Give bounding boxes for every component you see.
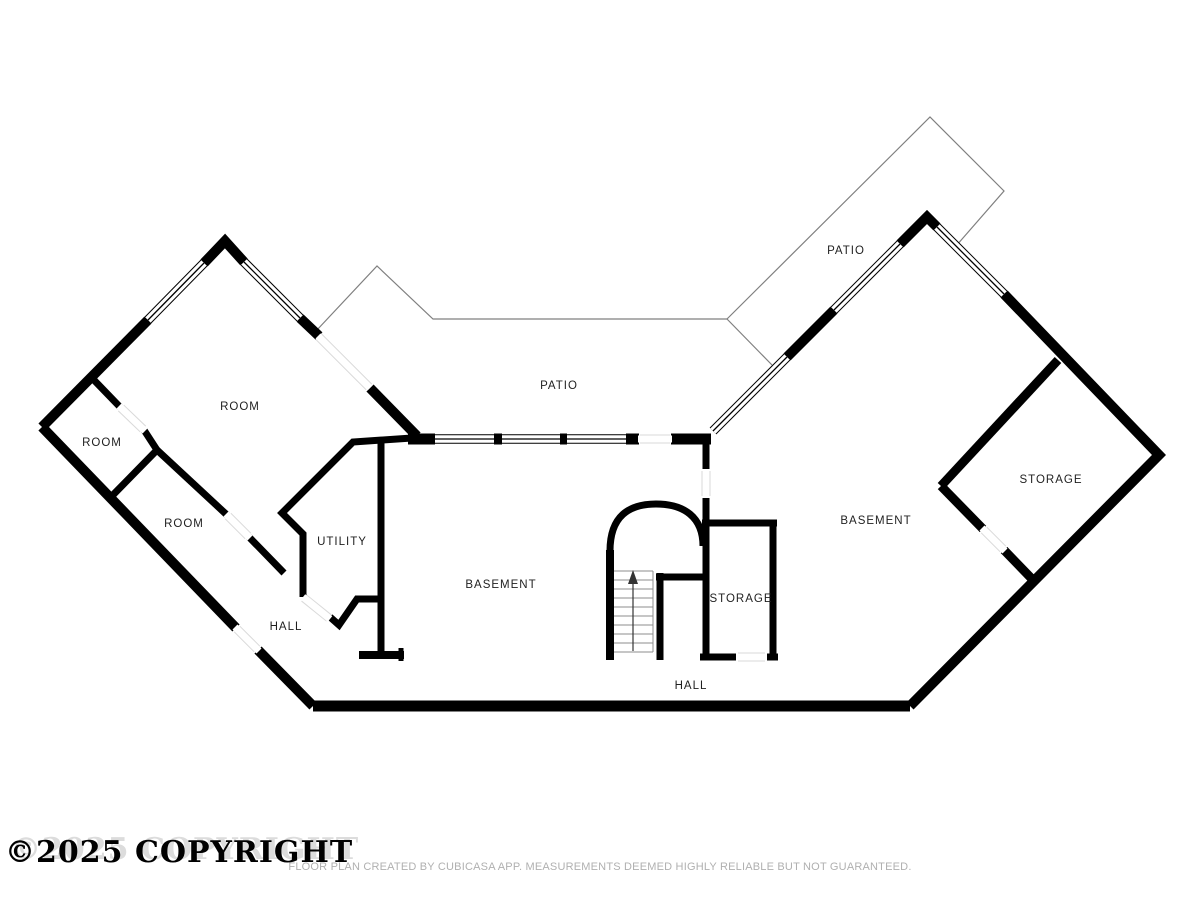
room-label-south: ROOM — [164, 518, 204, 530]
storage-east-sw-wall — [1004, 550, 1033, 580]
patio-outline-center-corner — [727, 319, 772, 365]
patio-label-northeast: PATIO — [827, 245, 865, 257]
wall-segment — [910, 294, 1159, 706]
wall-segment — [204, 241, 244, 263]
room-label-west: ROOM — [82, 437, 122, 449]
window — [148, 263, 204, 320]
stair-curved-wall — [610, 504, 703, 551]
wall-segment — [42, 320, 148, 427]
wall-segment — [370, 388, 417, 436]
storage-east-sw-wall — [941, 486, 983, 529]
window — [937, 227, 1004, 294]
utility-label: UTILITY — [317, 536, 367, 548]
wall-segment — [258, 650, 313, 706]
door-opening — [303, 597, 330, 619]
wall-segment — [249, 537, 284, 573]
wall-segment — [42, 427, 236, 628]
storage-east-nw-wall — [941, 360, 1058, 486]
door-opening — [982, 528, 1005, 551]
patio-outline-northeast — [727, 117, 1004, 319]
patio-outline-center — [316, 266, 727, 331]
door-opening — [119, 406, 145, 431]
door-opening — [226, 514, 250, 538]
hall-label-west: HALL — [270, 621, 303, 633]
storage-label-east: STORAGE — [1019, 474, 1082, 486]
stair-direction-arrow — [628, 570, 638, 651]
room-label-main: ROOM — [220, 401, 260, 413]
door-opening — [318, 336, 370, 388]
window — [244, 262, 300, 318]
floor-plan-drawing: ROOM ROOM ROOM PATIO PATIO UTILITY BASEM… — [0, 0, 1200, 900]
hall-label-center: HALL — [675, 680, 708, 692]
floor-plan-page: ROOM ROOM ROOM PATIO PATIO UTILITY BASEM… — [0, 0, 1200, 900]
door-opening — [235, 627, 259, 651]
basement-label-center: BASEMENT — [465, 579, 536, 591]
windows — [148, 227, 1004, 439]
wall-segment — [157, 450, 227, 515]
exterior-walls — [42, 217, 1159, 706]
storage-label-center: STORAGE — [709, 593, 772, 605]
staircase — [614, 570, 653, 652]
wall-segment — [92, 378, 120, 407]
wall-segment — [300, 318, 319, 336]
window — [713, 357, 787, 431]
utility-walls — [282, 438, 412, 597]
wall-segment — [787, 310, 834, 357]
patio-label-center: PATIO — [540, 380, 578, 392]
footer-disclaimer: FLOOR PLAN CREATED BY CUBICASA APP. MEAS… — [0, 861, 1200, 873]
wall-segment — [900, 217, 937, 244]
utility-door-jamb — [330, 599, 381, 625]
basement-label-east: BASEMENT — [840, 515, 911, 527]
